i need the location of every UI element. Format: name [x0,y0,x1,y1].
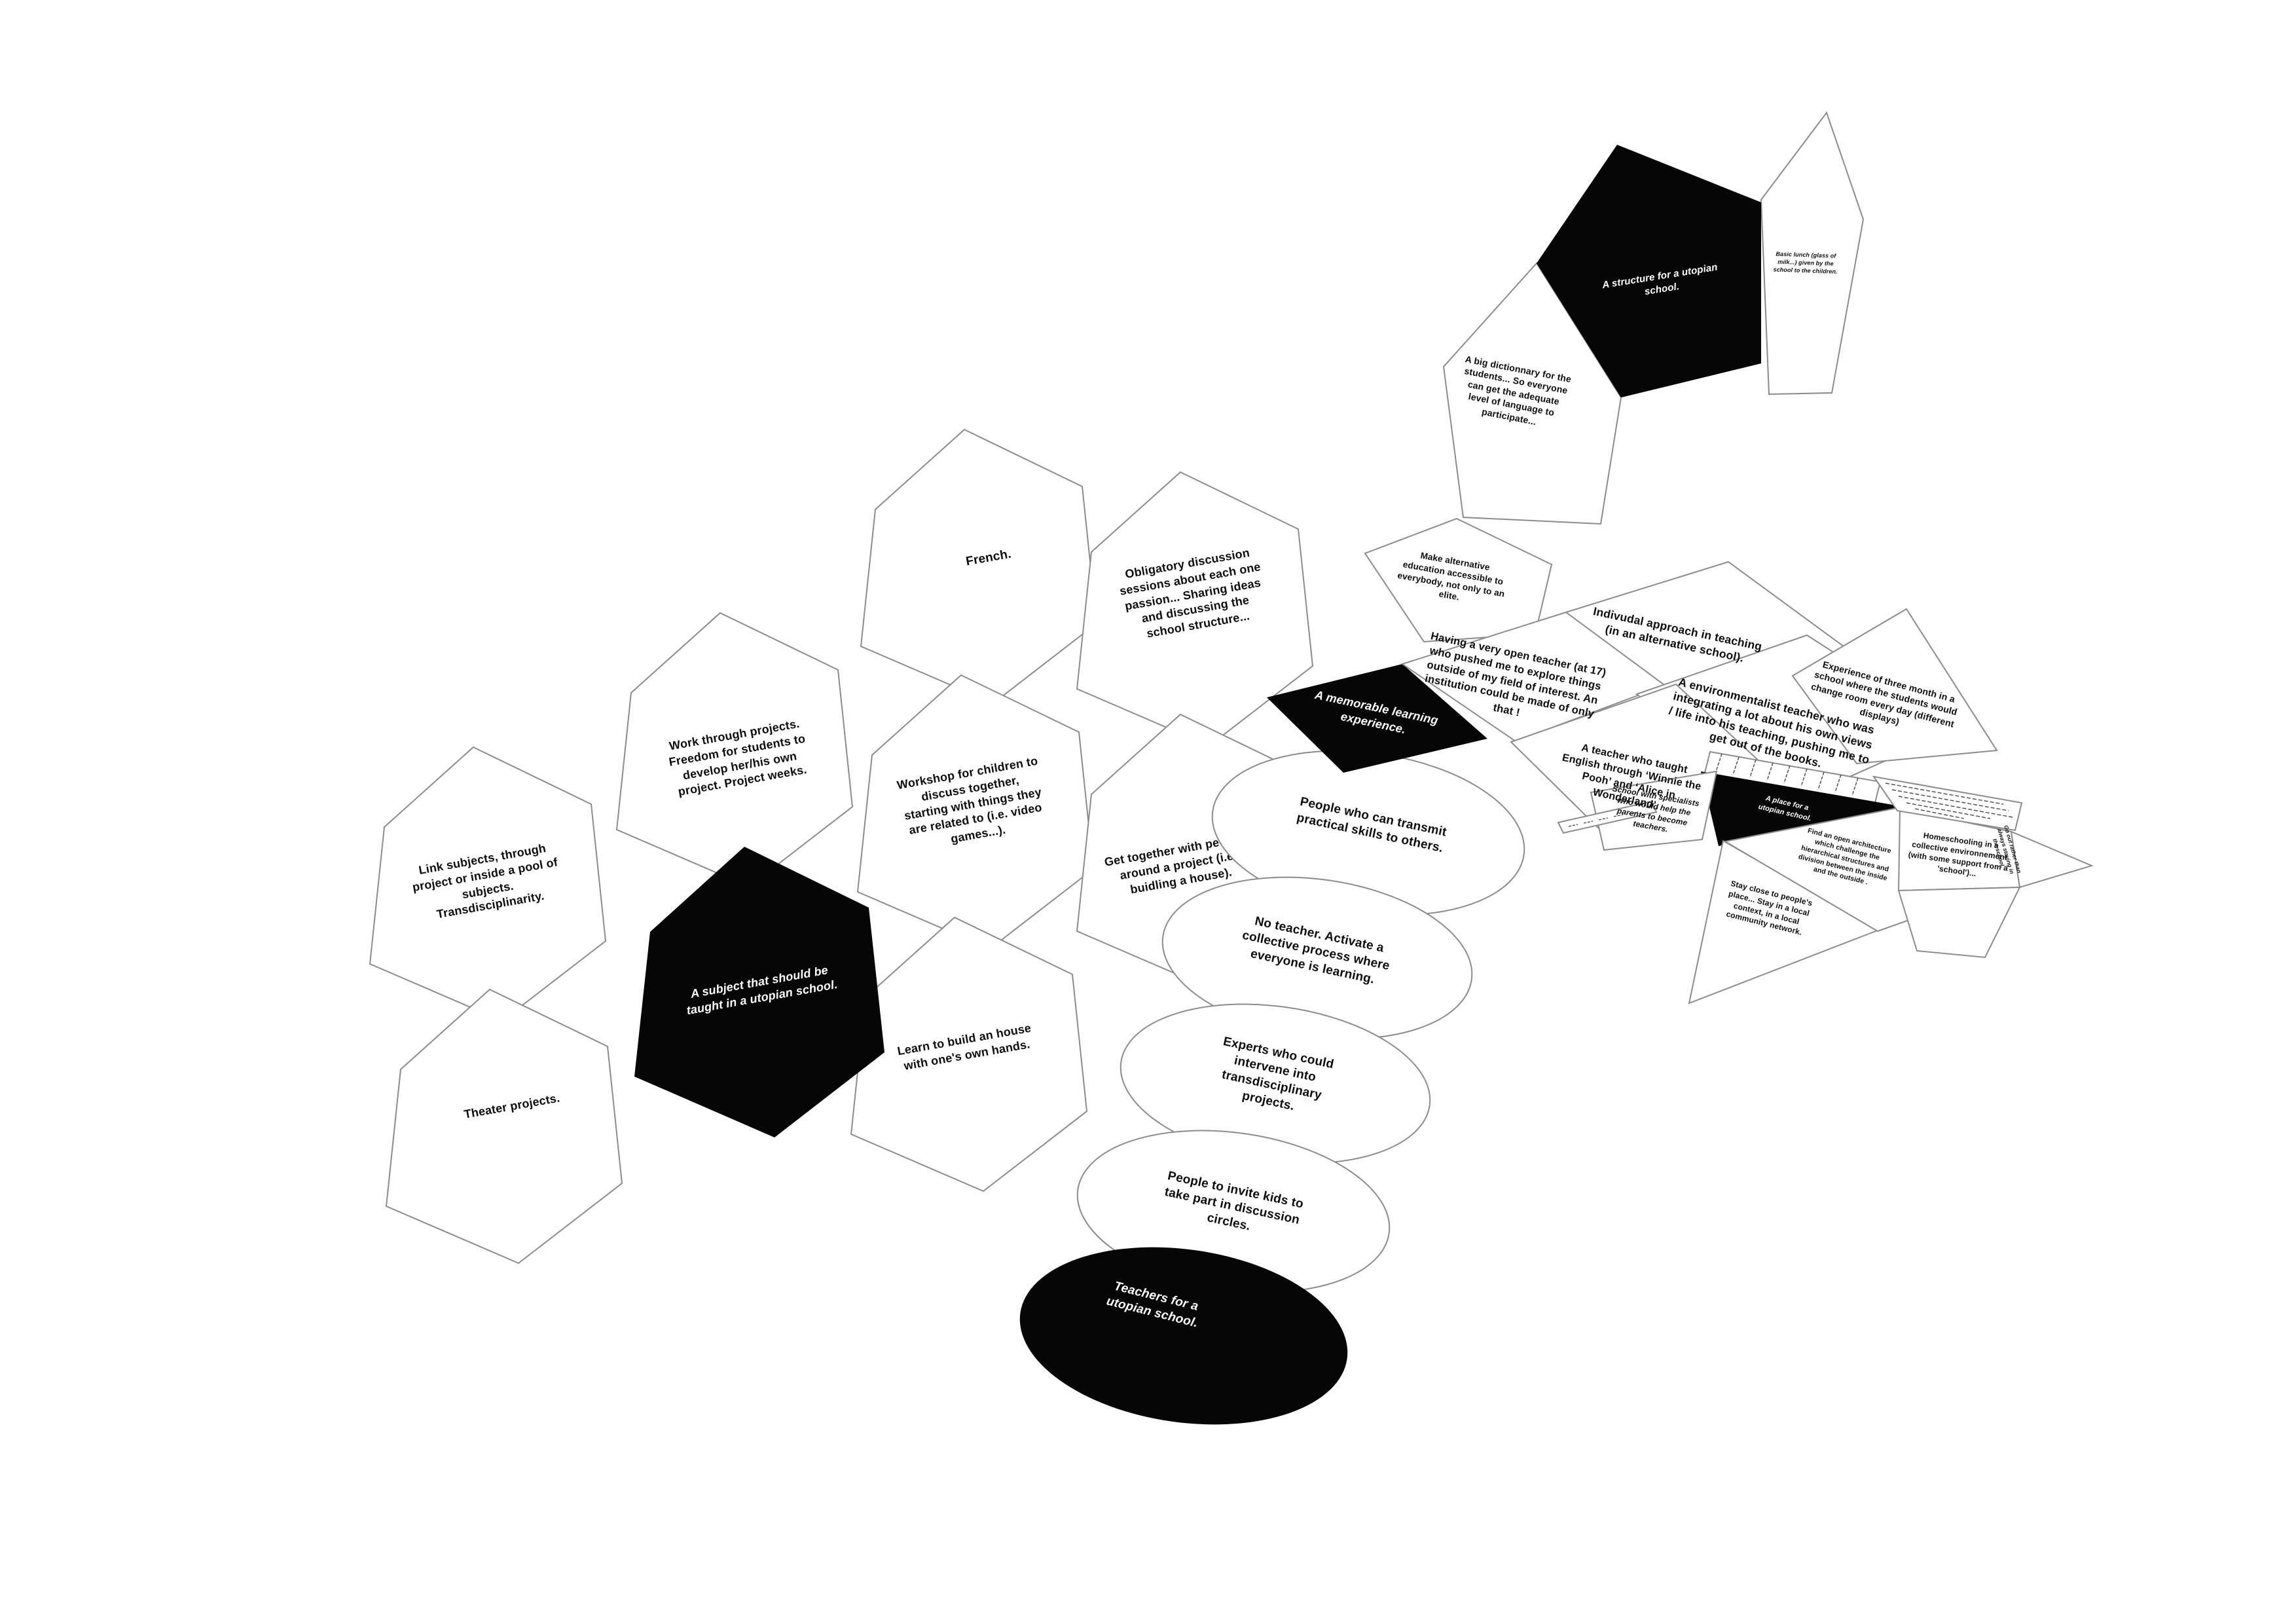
ellipse-card-teachers-black [1008,1227,1359,1445]
tiny-paragraph-strip [1874,777,2022,830]
net-empty-triangle-right [2011,832,2092,887]
tiny-paragraph-marks [1886,783,2013,819]
hex-label-subject-black: A subject that should be taught in a uto… [678,961,844,1020]
pentagon-label-structure-black: A structure for a utopian school. [1594,260,1728,306]
ellipse-label-invite-kids: People to invite kids to take part in di… [1154,1166,1311,1246]
hex-label-workshop: Workshop for children to discuss togethe… [895,753,1050,855]
hex-card-theater [386,989,622,1263]
pentagon-label-basic-lunch: Basic lunch (glass of milk...) given by … [1769,250,1842,276]
ellipse-label-no-teacher: No teacher. Activate a collective proces… [1235,911,1396,991]
panel-label-stay-close: Stay close to people's place... Stay in … [1713,877,1822,942]
ellipse-label-teachers-black: Teachers for a utopian school. [1087,1272,1222,1336]
hex-label-french: French. [922,538,1054,577]
shape-layer-base [0,0,2296,1624]
panel-label-place-black: A place for a utopian school. [1749,790,1823,825]
hex-label-learn-build: Learn to build an house with one's own h… [887,1019,1044,1077]
ellipse-label-experts: Experts who could intervene into transdi… [1193,1029,1354,1125]
shape-layer-top [0,0,2296,1624]
ellipse-label-transmit: People who can transmit practical skills… [1294,794,1448,857]
hex-label-link-subjects: Link subjects, through project or inside… [401,838,573,928]
pentagon-label-dictionnary: A big dictionnary for the students... So… [1453,352,1575,433]
panel-label-individual: Indivudal approach in teaching (in an al… [1586,603,1766,669]
hex-label-get-together: Get together with people, around a proje… [1097,829,1260,902]
hex-label-theater: Theater projects. [427,1084,597,1130]
pentagon-label-alternative: Make alternative education accessible to… [1393,546,1511,612]
panel-label-open-architecture: Find an open architecture which challeng… [1789,824,1901,894]
hex-label-work-through: Work through projects. Freedom for stude… [657,714,820,802]
poster-canvas: Link subjects, through project or inside… [0,0,2296,1624]
hex-label-obligatory: Obligatory discussion sessions about eac… [1114,544,1272,646]
net-empty-quad-bottom [1899,887,2020,957]
